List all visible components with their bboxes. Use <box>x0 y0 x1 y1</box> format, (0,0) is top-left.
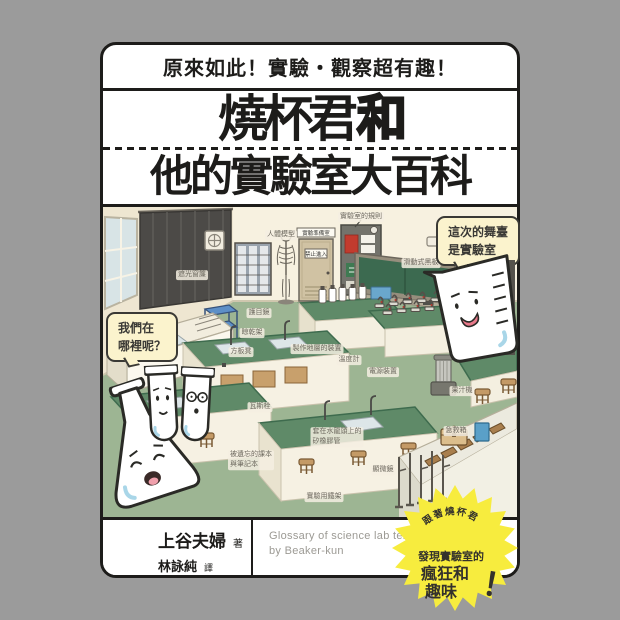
equipment-label: 果汁機 <box>450 386 475 396</box>
equipment-label: 套在水龍頭上的 矽橡膠管 <box>311 427 364 447</box>
author-role: 著 <box>233 539 243 550</box>
equipment-label: 電源裝置 <box>367 367 399 377</box>
speech-bubble-where: 我們在 哪裡呢？ <box>106 312 178 362</box>
equipment-label: 遮光窗簾 <box>176 270 208 280</box>
cover-tagline: 原來如此！實驗・觀察超有趣！ <box>103 45 517 91</box>
equipment-label: 實驗室的規則 <box>338 212 384 222</box>
book-cover-scan: 原來如此！實驗・觀察超有趣！ 燒杯君 和 他的實驗室大百科 <box>0 0 620 620</box>
equipment-label: 急救箱 <box>444 426 469 436</box>
title-main: 燒杯君 <box>218 94 353 144</box>
equipment-label: 被遺忘的課本 與筆記本 <box>228 450 274 470</box>
gas-valve <box>222 363 226 367</box>
equipment-label: 護目鏡 <box>247 308 272 318</box>
equipment-label: 實驗用鐵架 <box>305 492 344 502</box>
translator-row: 林詠純譯 <box>158 556 251 575</box>
equipment-label: 人體模型 <box>265 230 297 240</box>
title-line-1: 燒杯君 和 <box>103 91 517 147</box>
prep-room-sign: 實驗準備室 <box>297 228 335 237</box>
author-name: 上谷夫婦 <box>158 532 226 551</box>
equipment-label: 製作地層的裝置 <box>291 344 344 354</box>
svg-text:實驗準備室: 實驗準備室 <box>302 229 330 237</box>
translator-role: 譯 <box>204 563 213 573</box>
window <box>105 217 137 309</box>
badge-line-1: 發現實驗室的 <box>417 549 484 563</box>
beaker-kun-character <box>419 248 542 375</box>
blackout-curtain <box>138 209 233 309</box>
exhaust-fan-icon <box>205 231 224 250</box>
prep-room-door: 禁止進入 <box>299 239 333 301</box>
equipment-label: 晾乾架 <box>240 328 265 338</box>
equipment-label: 溫度計 <box>337 355 362 365</box>
promo-badge: 跟著燒杯君 發現實驗室的 瘋狂和 趣味 ！ <box>389 482 521 614</box>
badge-line-2: 瘋狂和 <box>420 564 469 583</box>
badge-line-3: 趣味 <box>424 582 457 601</box>
title-line-2: 他的實驗室大百科 <box>103 150 517 207</box>
title-and-outlined: 和 <box>357 94 402 144</box>
translator-name: 林詠純 <box>158 559 197 574</box>
author-row: 上谷夫婦著 <box>158 527 251 552</box>
equipment-label: 顯微鏡 <box>371 465 396 475</box>
badge-exclamation: ！ <box>480 565 518 606</box>
equipment-label: 方板凳 <box>229 347 254 357</box>
cooler-box <box>475 423 489 441</box>
no-entry-sign: 禁止進入 <box>305 250 328 258</box>
equipment-label: 瓦斯栓 <box>248 402 273 412</box>
test-tube-character-2 <box>177 366 215 450</box>
drying-shelf <box>235 243 271 295</box>
